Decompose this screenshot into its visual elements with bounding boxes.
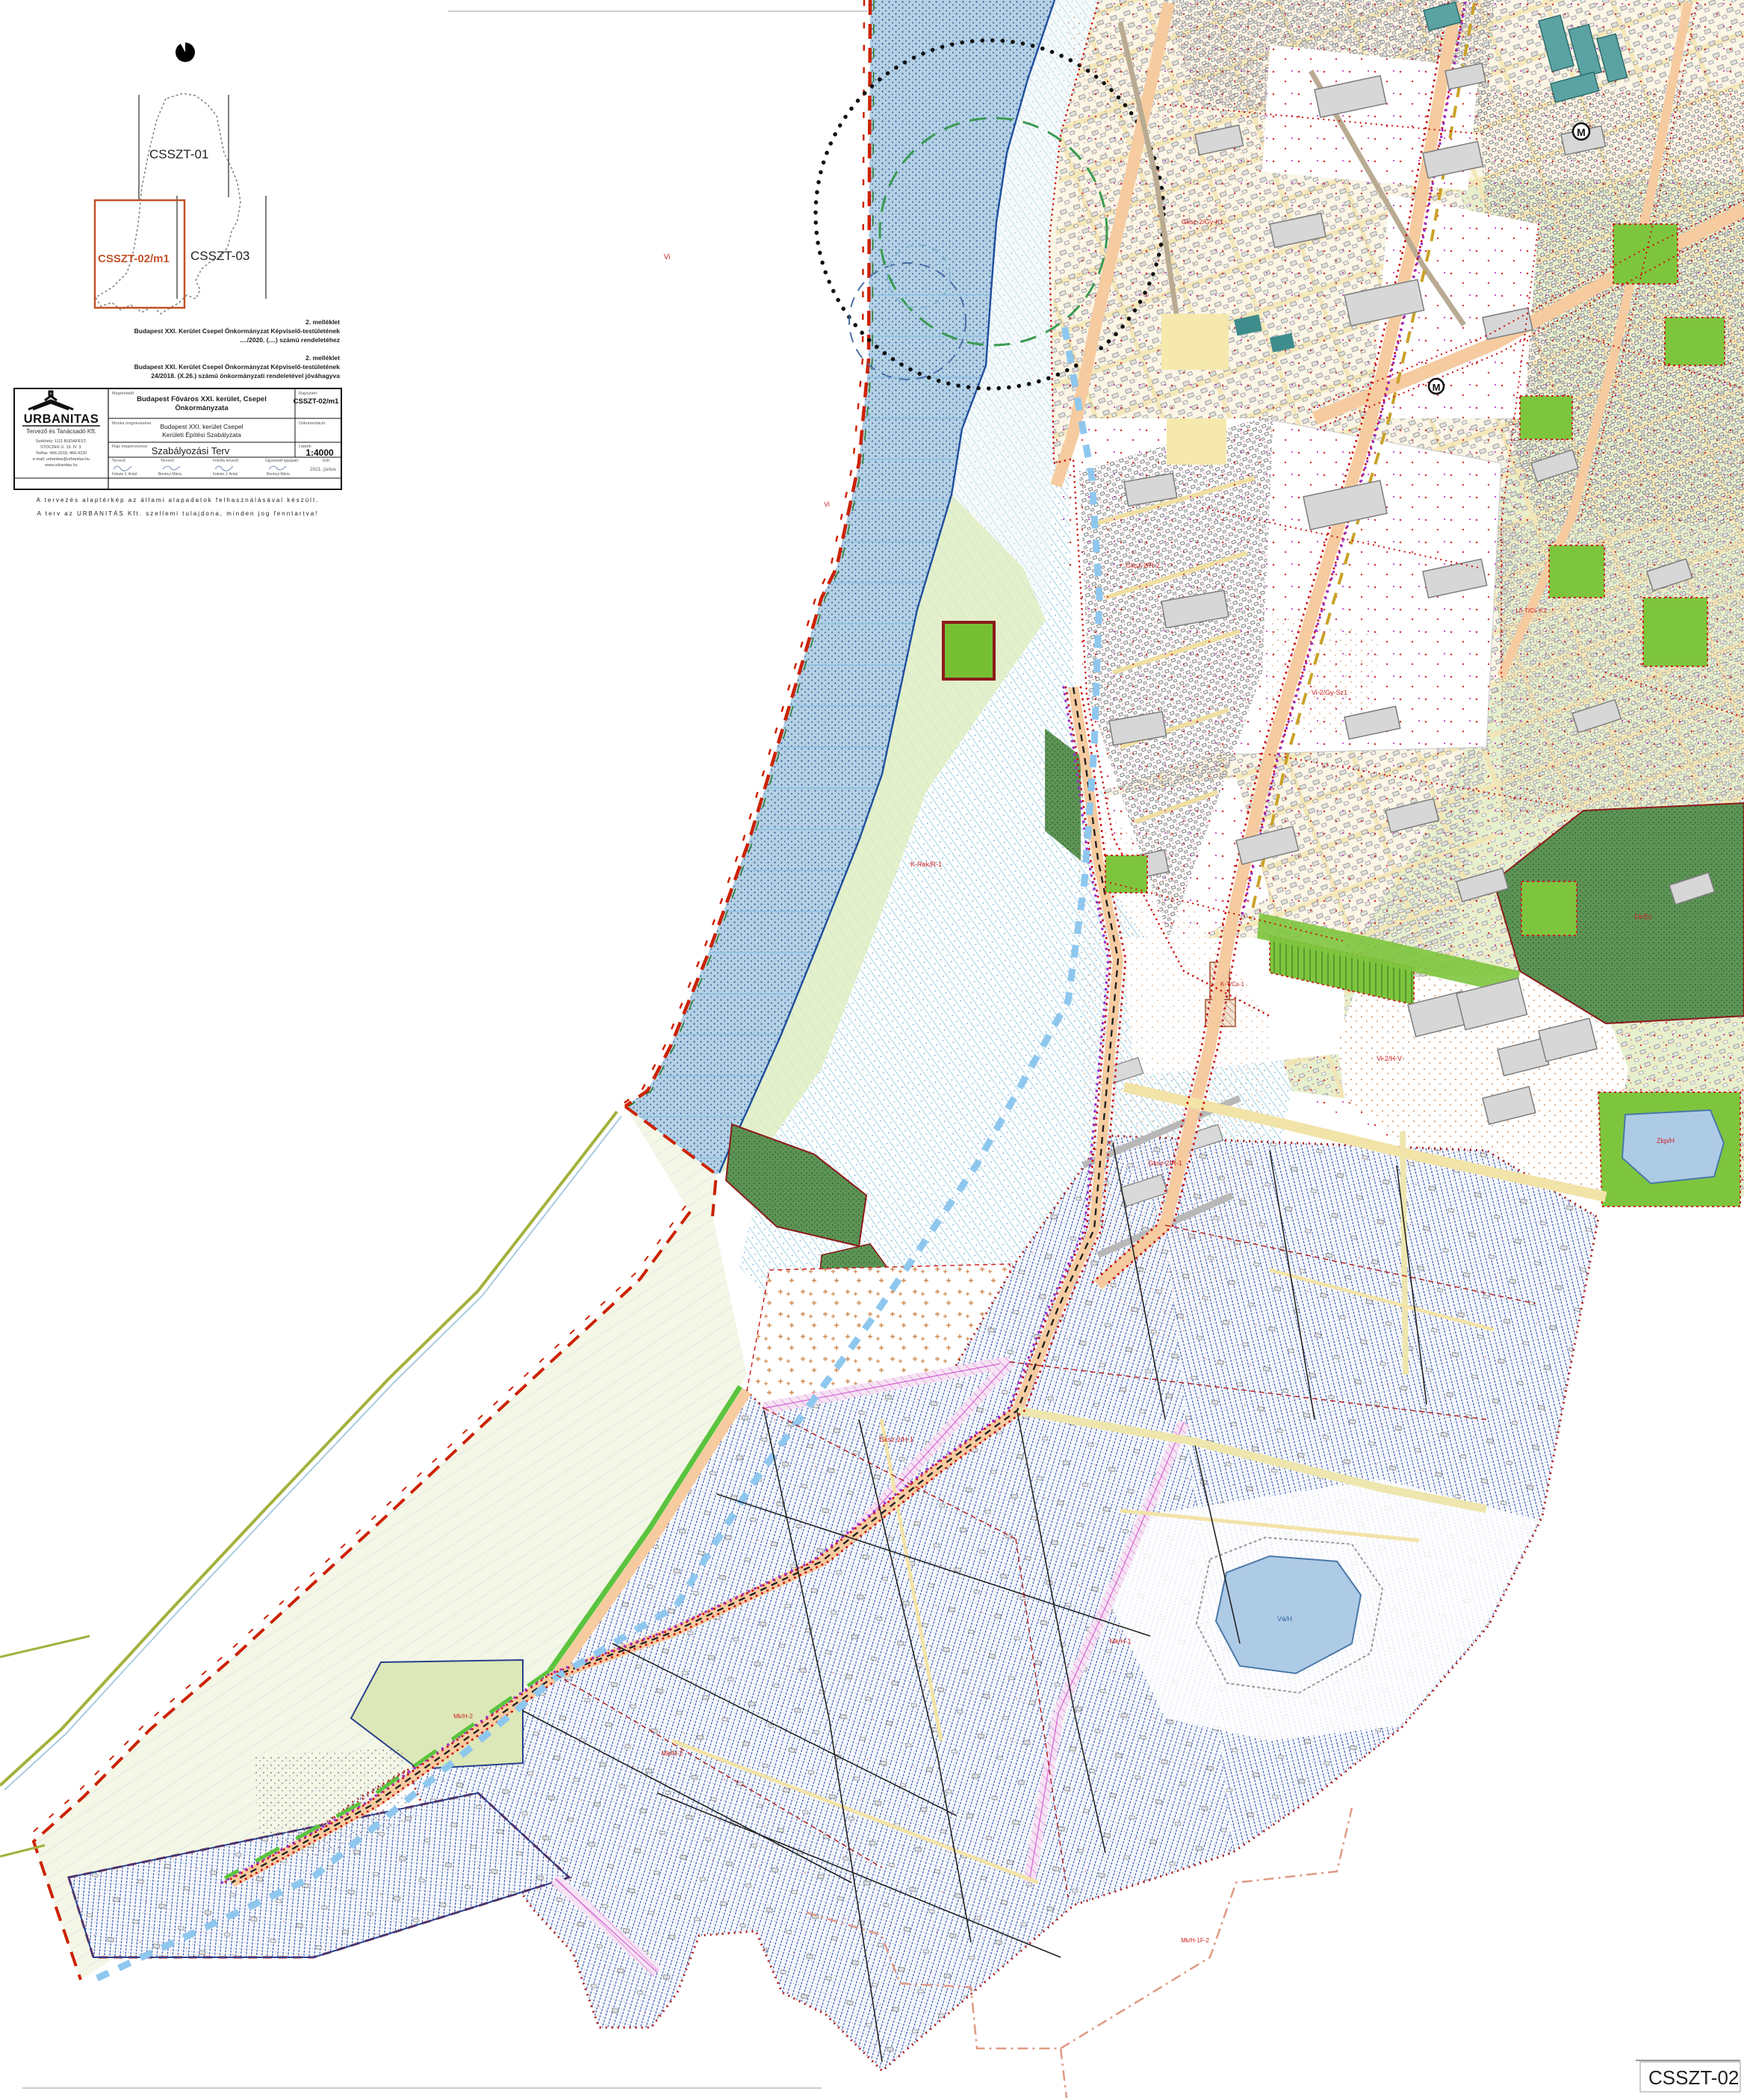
svg-text:Dokumentáció:: Dokumentáció: xyxy=(299,421,326,426)
svg-text:www.urbanitas.hu: www.urbanitas.hu xyxy=(44,463,77,468)
svg-text:Berényi Mária: Berényi Mária xyxy=(267,472,290,477)
svg-text:Budapest XXI. Kerület Csepel Ö: Budapest XXI. Kerület Csepel Önkormányza… xyxy=(134,327,341,335)
svg-text:M: M xyxy=(1433,382,1441,393)
svg-text:K-T/Cs-1: K-T/Cs-1 xyxy=(1220,981,1245,988)
svg-text:Ln-T/Cs-K1: Ln-T/Cs-K1 xyxy=(1516,607,1547,614)
svg-text:Tervező:: Tervező: xyxy=(161,459,175,463)
svg-text:Ek/Ez: Ek/Ez xyxy=(1634,913,1652,920)
svg-text:..../2020. (....) számú rendel: ..../2020. (....) számú rendeletéhez xyxy=(240,336,340,344)
svg-text:Budapest XXI. kerület Csepel: Budapest XXI. kerület Csepel xyxy=(160,423,243,430)
svg-text:Vi: Vi xyxy=(664,253,671,261)
svg-text:CSSZT-01: CSSZT-01 xyxy=(149,147,208,161)
svg-text:Önkormányzata: Önkormányzata xyxy=(175,404,229,412)
svg-text:STOCZEK U. 19. IV. 3.: STOCZEK U. 19. IV. 3. xyxy=(40,445,82,450)
svg-text:Vá/H: Vá/H xyxy=(1277,1615,1292,1623)
svg-text:Gksz-2/Gy-K1: Gksz-2/Gy-K1 xyxy=(1182,218,1224,226)
svg-text:Gksz-2/H-1: Gksz-2/H-1 xyxy=(879,1436,913,1443)
svg-text:Rajz megnevezése:: Rajz megnevezése: xyxy=(112,445,149,449)
svg-text:Megrendelő:: Megrendelő: xyxy=(112,391,135,396)
svg-text:Székhely: 1111 BUDAPEST,: Székhely: 1111 BUDAPEST, xyxy=(36,439,87,444)
svg-text:CSSZT-03: CSSZT-03 xyxy=(190,249,249,263)
svg-text:URBANITAS: URBANITAS xyxy=(24,412,99,426)
svg-text:Rajzszám:: Rajzszám: xyxy=(299,391,318,396)
svg-text:CSSZT-02/m1: CSSZT-02/m1 xyxy=(294,397,339,406)
svg-text:Ügyvezető igazgató:: Ügyvezető igazgató: xyxy=(265,458,299,463)
svg-text:Mk/H-1: Mk/H-1 xyxy=(1110,1638,1132,1645)
svg-text:CSSZT-02/m1: CSSZT-02/m1 xyxy=(98,253,170,265)
svg-text:Kelt:: Kelt: xyxy=(323,459,330,463)
svg-text:1:4000: 1:4000 xyxy=(305,447,334,458)
svg-text:A terv az URBANITÁS Kft. szell: A terv az URBANITÁS Kft. szellemi tulajd… xyxy=(37,510,319,517)
svg-text:e-mail: urbanitas@urbanitas.hu: e-mail: urbanitas@urbanitas.hu xyxy=(33,457,90,462)
svg-text:24/2018. (X.26.) számú önkorm: 24/2018. (X.26.) számú önkormányzati ren… xyxy=(151,372,340,380)
svg-text:Tervező:: Tervező: xyxy=(112,459,126,463)
svg-text:Fekete J. Antal: Fekete J. Antal xyxy=(112,472,137,477)
svg-text:Vi-2/H-V: Vi-2/H-V xyxy=(1377,1055,1402,1062)
svg-text:Gksz-2/R-1: Gksz-2/R-1 xyxy=(1148,1159,1182,1167)
svg-text:Fekete J. Antal: Fekete J. Antal xyxy=(213,472,238,477)
svg-text:Budapest Főváros XXI. kerület,: Budapest Főváros XXI. kerület, Csepel xyxy=(137,395,267,403)
svg-text:2021. június: 2021. június xyxy=(310,467,337,472)
svg-text:K-Rek/R-1: K-Rek/R-1 xyxy=(910,861,942,868)
svg-text:Tel/fax: 466-2018, 466-4220: Tel/fax: 466-2018, 466-4220 xyxy=(36,451,87,456)
svg-text:CSSZT-02: CSSZT-02 xyxy=(1648,2066,1739,2089)
svg-text:Zkp/H: Zkp/H xyxy=(1657,1137,1675,1145)
svg-text:Vi: Vi xyxy=(824,501,830,508)
svg-text:Mk/H-1F-2: Mk/H-1F-2 xyxy=(1181,1937,1209,1944)
svg-text:Tervező és Tanácsadó Kft.: Tervező és Tanácsadó Kft. xyxy=(26,428,96,435)
svg-text:A tervezés alaptérkép az állam: A tervezés alaptérkép az állami alapadat… xyxy=(37,497,320,504)
svg-text:Gksz-2/R-2: Gksz-2/R-2 xyxy=(1126,562,1160,569)
svg-text:Felelős tervező:: Felelős tervező: xyxy=(213,459,239,463)
svg-text:Kerületi Építési Szabályzata: Kerületi Építési Szabályzata xyxy=(162,431,241,439)
svg-text:2. melléklet: 2. melléklet xyxy=(305,354,340,362)
svg-text:Munka megnevezése:: Munka megnevezése: xyxy=(112,421,152,426)
svg-text:Berényi Mária: Berényi Mária xyxy=(158,472,181,477)
svg-text:Mk/H-2: Mk/H-2 xyxy=(662,1750,683,1757)
svg-text:Budapest XXI. Kerület Csepel Ö: Budapest XXI. Kerület Csepel Önkormányza… xyxy=(134,363,341,371)
svg-text:2. melléklet: 2. melléklet xyxy=(305,318,340,326)
svg-text:Vi-2/Gy-Sz1: Vi-2/Gy-Sz1 xyxy=(1312,689,1347,696)
svg-text:Mk/H-2: Mk/H-2 xyxy=(453,1713,473,1720)
svg-text:Szabályozási Terv: Szabályozási Terv xyxy=(152,445,230,456)
svg-text:M: M xyxy=(1577,126,1586,138)
